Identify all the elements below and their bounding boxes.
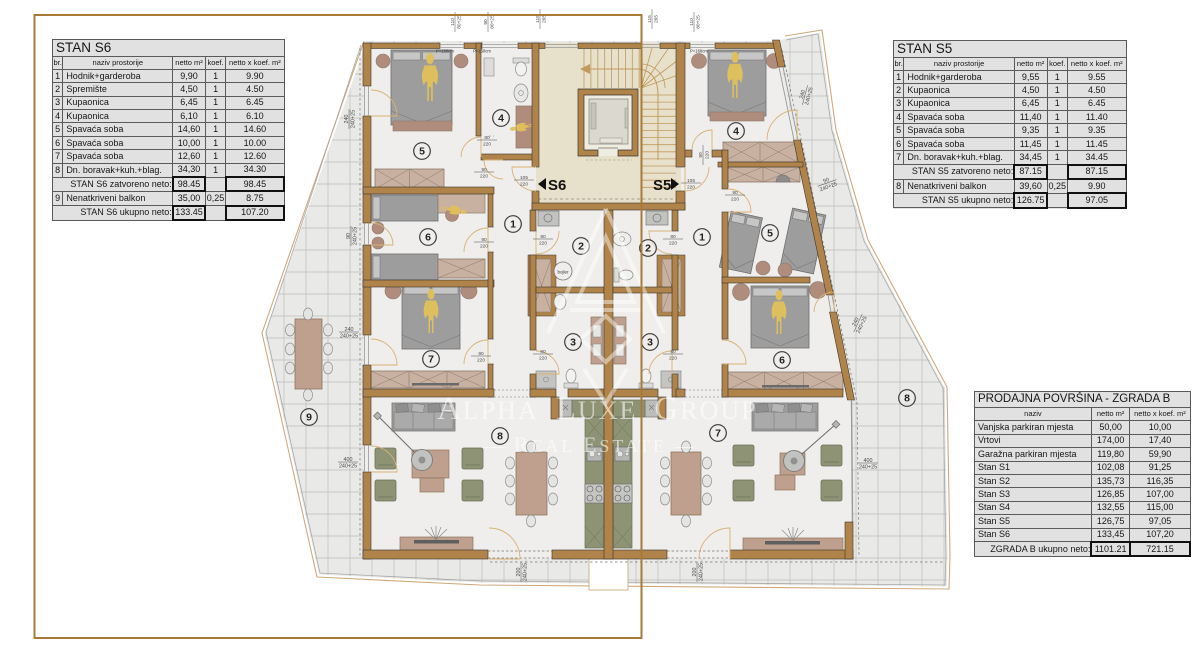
svg-text:80+25: 80+25: [490, 15, 496, 29]
svg-text:7: 7: [715, 428, 721, 440]
svg-text:220: 220: [731, 197, 739, 203]
svg-text:S6: S6: [548, 177, 566, 194]
svg-text:2: 2: [578, 241, 584, 253]
svg-text:bojler: bojler: [557, 270, 569, 275]
svg-text:6: 6: [779, 355, 785, 367]
svg-text:80+25: 80+25: [696, 15, 702, 29]
svg-text:6: 6: [425, 232, 431, 244]
svg-text:4: 4: [733, 126, 739, 138]
svg-text:5: 5: [767, 228, 773, 240]
svg-text:1: 1: [510, 219, 516, 231]
svg-text:2: 2: [645, 243, 651, 255]
svg-text:240+25: 240+25: [699, 563, 705, 581]
svg-text:220: 220: [539, 356, 547, 362]
svg-text:220: 220: [520, 182, 528, 188]
svg-text:7: 7: [428, 354, 434, 366]
svg-text:220: 220: [480, 244, 488, 250]
svg-text:240+25: 240+25: [340, 334, 358, 340]
svg-text:220: 220: [539, 241, 547, 247]
svg-text:8: 8: [904, 393, 910, 405]
svg-text:80+25: 80+25: [457, 15, 463, 29]
svg-text:5: 5: [419, 146, 425, 158]
svg-text:220: 220: [687, 185, 695, 191]
svg-text:1: 1: [699, 232, 705, 244]
svg-text:240+25: 240+25: [859, 465, 877, 471]
svg-text:3: 3: [647, 337, 653, 349]
svg-text:3: 3: [570, 337, 576, 349]
svg-text:220: 220: [669, 356, 677, 362]
svg-text:S5: S5: [653, 177, 671, 194]
svg-text:P=160cm: P=160cm: [436, 49, 454, 54]
svg-text:240+25: 240+25: [351, 110, 357, 128]
svg-text:ALPHA LUXE GROUP: ALPHA LUXE GROUP: [437, 391, 758, 427]
svg-text:220: 220: [669, 241, 677, 247]
svg-text:P=160cm: P=160cm: [473, 49, 491, 54]
svg-text:220: 220: [477, 358, 485, 364]
svg-text:220: 220: [705, 151, 711, 159]
svg-text:220: 220: [480, 174, 488, 180]
svg-text:— REAL ESTATE —: — REAL ESTATE —: [483, 432, 697, 457]
svg-text:4: 4: [498, 113, 504, 125]
svg-text:P=160cm: P=160cm: [690, 49, 708, 54]
svg-text:240+25: 240+25: [339, 464, 357, 470]
svg-text:240+25: 240+25: [523, 563, 529, 581]
svg-text:9: 9: [306, 412, 312, 424]
svg-text:220: 220: [483, 142, 491, 148]
svg-text:240+25: 240+25: [353, 227, 359, 245]
svg-text:265: 265: [654, 15, 660, 23]
